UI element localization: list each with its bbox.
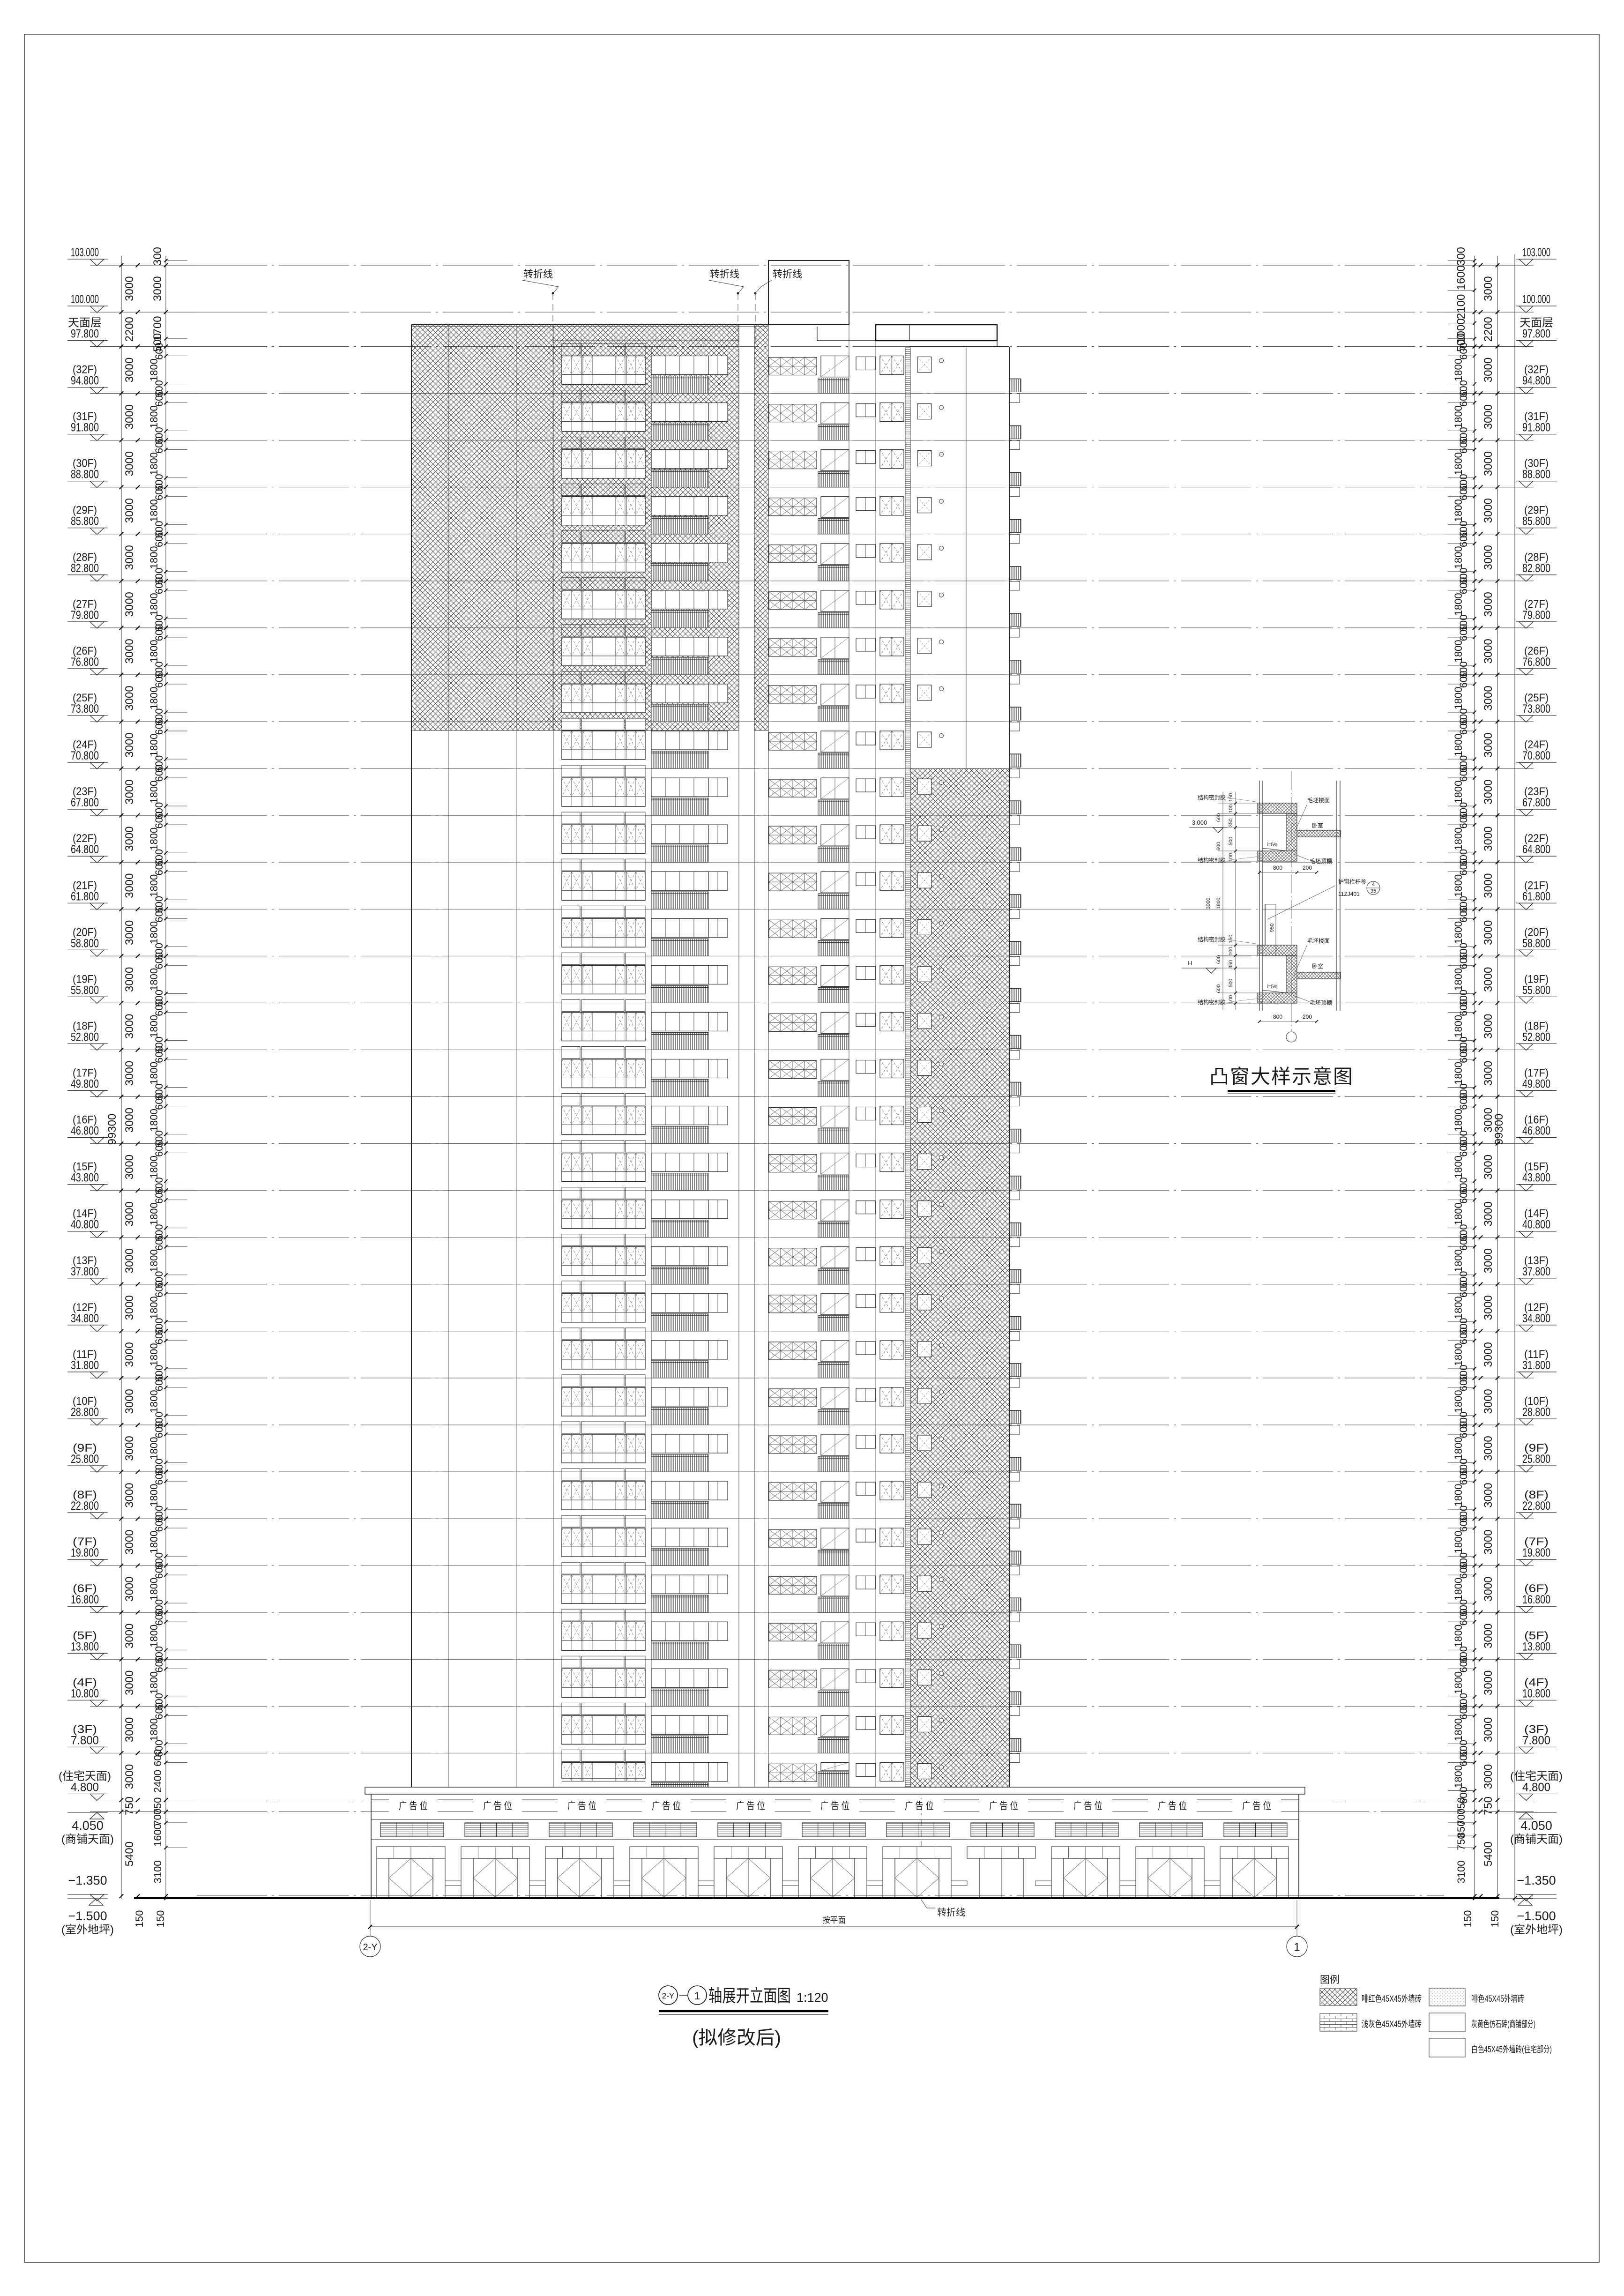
svg-text:3000: 3000 [123,1483,136,1507]
svg-text:广 告 位: 广 告 位 [736,1801,765,1811]
svg-text:1800: 1800 [148,921,160,944]
svg-text:3000: 3000 [123,1014,136,1039]
svg-text:广 告 位: 广 告 位 [399,1801,428,1811]
svg-text:1800: 1800 [1453,1671,1464,1694]
svg-text:3000: 3000 [1482,873,1495,898]
svg-text:1800: 1800 [148,640,160,663]
svg-text:(室外地坪): (室外地坪) [61,1923,114,1936]
svg-text:广 告 位: 广 告 位 [820,1801,849,1811]
svg-text:按平面: 按平面 [822,1916,846,1925]
svg-text:64.800: 64.800 [1522,843,1550,856]
svg-text:1800: 1800 [148,781,160,804]
svg-text:1800: 1800 [1453,1578,1464,1601]
svg-text:13.800: 13.800 [71,1640,99,1653]
svg-text:150: 150 [1228,793,1234,802]
svg-text:16.800: 16.800 [71,1593,99,1606]
svg-text:82.800: 82.800 [71,562,99,575]
svg-text:600: 600 [153,380,165,397]
svg-text:1800: 1800 [148,1671,160,1694]
svg-text:750: 750 [1455,1833,1467,1850]
svg-text:啡色45X45外墙砖: 啡色45X45外墙砖 [1471,1994,1524,2004]
svg-text:300: 300 [1455,247,1468,266]
svg-text:3000: 3000 [123,1529,136,1554]
svg-text:广 告 位: 广 告 位 [1242,1801,1271,1811]
svg-text:34.800: 34.800 [1522,1312,1550,1325]
svg-text:(商铺天面): (商铺天面) [61,1833,114,1846]
svg-text:150: 150 [155,1910,166,1928]
svg-text:毛坯顶棚: 毛坯顶棚 [1310,999,1332,1006]
svg-text:浅灰色45X45外墙砖: 浅灰色45X45外墙砖 [1362,2019,1422,2029]
svg-text:1800: 1800 [148,593,160,616]
svg-text:600: 600 [1458,896,1469,913]
svg-text:600: 600 [153,1693,165,1710]
svg-text:3000: 3000 [1482,779,1495,804]
svg-text:3100: 3100 [1455,1860,1467,1883]
svg-text:70.800: 70.800 [1522,749,1550,762]
svg-text:3000: 3000 [123,1436,136,1461]
svg-text:1800: 1800 [148,1249,160,1272]
svg-text:600: 600 [1458,990,1469,1007]
svg-text:1800: 1800 [148,734,160,757]
svg-text:1: 1 [1294,1941,1300,1953]
svg-text:150: 150 [1489,1910,1501,1928]
svg-text:7.800: 7.800 [1522,1734,1550,1747]
svg-text:31.800: 31.800 [71,1359,99,1372]
svg-text:600: 600 [1458,849,1469,866]
svg-text:600: 600 [1458,1412,1469,1429]
svg-text:40.800: 40.800 [1522,1218,1550,1231]
svg-text:300: 300 [151,247,164,266]
svg-text:1800: 1800 [1453,921,1464,944]
svg-text:1800: 1800 [1453,1437,1464,1460]
svg-text:2-Y: 2-Y [363,1942,377,1953]
svg-text:600: 600 [153,943,165,960]
svg-text:600: 600 [1458,474,1469,491]
svg-text:4.050: 4.050 [72,1819,104,1833]
svg-text:600: 600 [153,990,165,1007]
svg-text:1:120: 1:120 [797,1990,828,2005]
svg-text:转折线: 转折线 [937,1907,965,1918]
svg-text:600: 600 [153,1177,165,1194]
svg-text:3000: 3000 [1482,1483,1495,1507]
svg-text:600: 600 [153,662,165,679]
svg-text:1800: 1800 [1453,1484,1464,1507]
svg-text:3000: 3000 [123,498,136,523]
svg-text:结构密封胶: 结构密封胶 [1198,936,1226,943]
svg-text:3000: 3000 [151,276,164,301]
svg-text:79.800: 79.800 [71,609,99,622]
svg-text:600: 600 [1458,427,1469,444]
svg-text:1: 1 [694,1990,700,2002]
svg-text:76.800: 76.800 [71,656,99,669]
svg-text:600: 600 [153,849,165,866]
svg-text:3000: 3000 [123,1201,136,1226]
svg-text:3.000: 3.000 [1192,819,1207,826]
svg-text:600: 600 [1458,1083,1469,1101]
svg-text:−1.350: −1.350 [68,1873,107,1887]
svg-text:1800: 1800 [148,546,160,569]
svg-text:58.800: 58.800 [1522,937,1550,950]
svg-text:500: 500 [1228,979,1234,987]
svg-text:(商铺天面): (商铺天面) [1510,1833,1563,1846]
svg-text:11ZJ401: 11ZJ401 [1338,891,1360,897]
svg-text:1800: 1800 [1453,781,1464,804]
svg-text:800: 800 [1273,865,1282,871]
svg-text:啡红色45X45外墙砖: 啡红色45X45外墙砖 [1362,1994,1422,2004]
svg-text:3100: 3100 [152,1860,164,1883]
svg-text:600: 600 [1458,521,1469,538]
svg-text:600: 600 [1216,955,1222,964]
svg-text:600: 600 [1458,1318,1469,1335]
svg-text:600: 600 [1458,1693,1469,1710]
svg-text:3000: 3000 [1482,545,1495,570]
svg-text:5400: 5400 [1482,1841,1495,1866]
svg-text:97.800: 97.800 [71,328,99,341]
svg-text:1800: 1800 [148,1390,160,1413]
svg-text:3000: 3000 [123,1295,136,1320]
svg-text:350: 350 [1228,960,1234,969]
svg-text:10.800: 10.800 [71,1687,99,1700]
svg-text:广 告 位: 广 告 位 [567,1801,596,1811]
svg-text:19.800: 19.800 [1522,1546,1550,1559]
svg-text:3000: 3000 [123,592,136,617]
svg-text:1800: 1800 [1453,1155,1464,1178]
svg-text:2-Y: 2-Y [662,1991,674,2000]
svg-text:43.800: 43.800 [1522,1171,1550,1185]
svg-text:1800: 1800 [1453,405,1464,428]
svg-text:600: 600 [153,521,165,538]
svg-text:67.800: 67.800 [1522,796,1550,809]
svg-text:35: 35 [1371,888,1376,894]
svg-text:1800: 1800 [148,1015,160,1038]
svg-text:43.800: 43.800 [71,1171,99,1185]
svg-text:150: 150 [1462,1910,1474,1928]
svg-text:3000: 3000 [1482,1248,1495,1273]
svg-text:58.800: 58.800 [71,937,99,950]
svg-text:1800: 1800 [148,1437,160,1460]
svg-text:49.800: 49.800 [71,1078,99,1091]
svg-text:1800: 1800 [148,874,160,897]
svg-text:1800: 1800 [1453,1062,1464,1085]
svg-text:i=5%: i=5% [1267,842,1279,848]
svg-text:3000: 3000 [123,404,136,429]
svg-text:3000: 3000 [123,276,136,301]
svg-text:103.000: 103.000 [71,246,99,259]
svg-text:3000: 3000 [123,967,136,992]
svg-text:3000: 3000 [123,1717,136,1742]
svg-text:毛坯楼面: 毛坯楼面 [1307,797,1330,804]
svg-text:600: 600 [1458,1599,1469,1617]
svg-text:88.800: 88.800 [1522,468,1550,481]
svg-text:毛坯楼面: 毛坯楼面 [1307,937,1330,944]
svg-text:600: 600 [1458,1036,1469,1054]
svg-text:1800: 1800 [1453,640,1464,663]
svg-text:600: 600 [153,708,165,726]
svg-text:1800: 1800 [1453,499,1464,522]
svg-text:1800: 1800 [1453,452,1464,475]
svg-text:广 告 位: 广 告 位 [652,1801,681,1811]
svg-text:转折线: 转折线 [523,269,553,280]
svg-text:1800: 1800 [148,1578,160,1601]
svg-text:28.800: 28.800 [1522,1406,1550,1419]
svg-text:600: 600 [152,1749,164,1767]
svg-text:1800: 1800 [1453,1343,1464,1366]
svg-text:1800: 1800 [1453,1296,1464,1319]
svg-text:广 告 位: 广 告 位 [989,1801,1018,1811]
svg-text:600: 600 [153,1506,165,1523]
svg-text:600: 600 [1216,842,1222,850]
svg-text:25.800: 25.800 [71,1453,99,1466]
svg-text:600: 600 [1458,1177,1469,1194]
svg-text:150: 150 [134,1910,145,1928]
svg-text:600: 600 [153,615,165,632]
svg-text:3000: 3000 [1482,1155,1495,1179]
svg-text:600: 600 [153,1271,165,1288]
svg-text:1800: 1800 [1453,593,1464,616]
svg-text:85.800: 85.800 [1522,515,1550,528]
svg-text:600: 600 [1458,1271,1469,1288]
svg-text:结构密封胶: 结构密封胶 [1198,857,1226,864]
svg-text:1800: 1800 [148,452,160,475]
svg-text:4.050: 4.050 [1520,1819,1552,1833]
svg-text:2200: 2200 [123,317,136,342]
svg-text:1800: 1800 [148,1625,160,1647]
svg-text:3000: 3000 [1482,1014,1495,1039]
svg-text:600: 600 [153,802,165,820]
svg-text:88.800: 88.800 [71,468,99,481]
svg-text:3000: 3000 [1482,1529,1495,1554]
svg-text:−1.500: −1.500 [1517,1909,1556,1923]
svg-text:1800: 1800 [148,358,160,381]
svg-text:图例: 图例 [1320,1975,1340,1985]
svg-text:99300: 99300 [1493,1114,1505,1145]
svg-text:600: 600 [1458,343,1469,360]
svg-text:3000: 3000 [123,1764,136,1789]
svg-text:毛坯顶棚: 毛坯顶棚 [1310,857,1332,865]
svg-text:1800: 1800 [1453,1015,1464,1038]
svg-text:99300: 99300 [106,1114,119,1145]
svg-text:3000: 3000 [123,920,136,945]
svg-text:1800: 1800 [1453,734,1464,757]
svg-text:1600: 1600 [152,1824,164,1847]
svg-text:600: 600 [153,1365,165,1382]
svg-text:3000: 3000 [123,1624,136,1648]
svg-text:46.800: 46.800 [71,1125,99,1138]
svg-text:600: 600 [153,1130,165,1148]
svg-text:37.800: 37.800 [1522,1265,1550,1278]
svg-text:1800: 1800 [1453,1109,1464,1132]
svg-text:1800: 1800 [148,1531,160,1554]
svg-text:600: 600 [1458,708,1469,726]
svg-text:3000: 3000 [1482,1342,1495,1367]
svg-text:3000: 3000 [1482,1670,1495,1695]
svg-text:55.800: 55.800 [1522,984,1550,997]
svg-text:3000: 3000 [123,1389,136,1414]
svg-text:(拟修改后): (拟修改后) [692,2028,781,2048]
svg-text:1800: 1800 [148,1202,160,1225]
svg-text:64.800: 64.800 [71,843,99,856]
svg-text:91.800: 91.800 [71,421,99,434]
svg-text:600: 600 [1458,662,1469,679]
svg-text:3000: 3000 [1482,967,1495,992]
svg-text:3000: 3000 [1482,404,1495,429]
svg-text:13.800: 13.800 [1522,1640,1550,1653]
svg-text:3000: 3000 [123,1061,136,1086]
svg-text:3000: 3000 [123,732,136,757]
svg-text:94.800: 94.800 [71,374,99,388]
svg-text:85.800: 85.800 [71,515,99,528]
svg-text:200: 200 [1303,1014,1312,1020]
svg-text:转折线: 转折线 [773,269,802,280]
svg-text:600: 600 [153,1318,165,1335]
svg-text:600: 600 [1458,567,1469,585]
svg-text:3000: 3000 [1482,498,1495,523]
svg-text:3000: 3000 [1482,1389,1495,1414]
svg-text:1800: 1800 [148,1155,160,1178]
svg-text:1800: 1800 [148,1484,160,1507]
svg-text:1800: 1800 [148,1343,160,1366]
svg-text:94.800: 94.800 [1522,374,1550,388]
svg-text:600: 600 [1458,380,1469,397]
svg-text:500: 500 [1228,837,1234,845]
svg-text:350: 350 [1228,819,1234,827]
svg-text:600: 600 [153,1412,165,1429]
svg-text:52.800: 52.800 [71,1031,99,1044]
svg-text:600: 600 [153,755,165,773]
svg-text:1800: 1800 [148,1062,160,1085]
svg-text:600: 600 [153,1459,165,1476]
svg-text:100.000: 100.000 [1522,293,1550,306]
svg-text:1800: 1800 [1453,358,1464,381]
svg-text:79.800: 79.800 [1522,609,1550,622]
svg-text:1800: 1800 [148,1718,160,1741]
svg-text:73.800: 73.800 [71,702,99,716]
svg-text:91.800: 91.800 [1522,421,1550,434]
svg-text:轴展开立面图: 轴展开立面图 [708,1986,791,2005]
svg-text:1800: 1800 [1453,1625,1464,1647]
svg-text:19.800: 19.800 [71,1546,99,1559]
svg-text:3000: 3000 [1482,1577,1495,1602]
svg-text:1800: 1800 [148,1109,160,1132]
svg-text:600: 600 [1458,1130,1469,1148]
svg-text:1800: 1800 [148,827,160,850]
svg-text:600: 600 [153,1036,165,1054]
svg-text:3000: 3000 [123,1577,136,1602]
svg-text:67.800: 67.800 [71,796,99,809]
svg-text:34.800: 34.800 [71,1312,99,1325]
svg-text:600: 600 [153,1224,165,1241]
svg-text:100.000: 100.000 [71,293,99,306]
svg-text:3000: 3000 [123,1108,136,1133]
svg-text:28.800: 28.800 [71,1406,99,1419]
svg-text:凸窗大样示意图: 凸窗大样示意图 [1209,1066,1354,1088]
svg-text:1800: 1800 [1453,1765,1464,1788]
svg-text:100: 100 [1228,853,1234,862]
svg-text:1800: 1800 [1453,1390,1464,1413]
svg-text:100: 100 [1228,805,1234,813]
svg-text:600: 600 [153,1083,165,1101]
svg-text:750: 750 [123,1797,136,1815]
svg-text:70.800: 70.800 [71,749,99,762]
svg-text:61.800: 61.800 [71,890,99,903]
svg-text:200: 200 [1303,865,1312,871]
svg-text:1800: 1800 [148,499,160,522]
svg-text:白色45X45外墙砖(住宅部分): 白色45X45外墙砖(住宅部分) [1471,2044,1552,2055]
svg-text:3000: 3000 [123,1155,136,1179]
svg-text:卧室: 卧室 [1312,962,1323,969]
svg-text:2200: 2200 [1482,317,1495,342]
svg-text:3000: 3000 [123,1248,136,1273]
svg-text:800: 800 [1273,1014,1282,1020]
svg-text:3000: 3000 [1482,451,1495,476]
svg-text:3000: 3000 [1482,1764,1495,1789]
svg-text:22.800: 22.800 [1522,1499,1550,1513]
svg-text:3000: 3000 [1482,732,1495,757]
svg-text:600: 600 [1458,755,1469,773]
svg-text:4: 4 [1372,882,1375,887]
svg-text:76.800: 76.800 [1522,656,1550,669]
svg-text:600: 600 [1458,1224,1469,1241]
svg-text:600: 600 [1458,1459,1469,1476]
svg-text:1800: 1800 [1453,827,1464,850]
svg-text:1800: 1800 [1453,687,1464,710]
svg-text:1800: 1800 [1453,1249,1464,1272]
svg-text:3000: 3000 [123,451,136,476]
svg-text:600: 600 [1458,1506,1469,1523]
svg-text:3000: 3000 [1482,639,1495,663]
svg-text:103.000: 103.000 [1522,246,1550,259]
svg-text:广 告 位: 广 告 位 [1073,1801,1103,1811]
svg-text:600: 600 [153,1646,165,1663]
svg-text:55.800: 55.800 [71,984,99,997]
svg-text:1800: 1800 [148,405,160,428]
svg-text:600: 600 [1458,1749,1469,1767]
svg-text:150: 150 [1228,935,1234,943]
svg-text:750: 750 [1482,1797,1495,1815]
svg-text:100: 100 [1228,947,1234,955]
svg-text:转折线: 转折线 [710,269,739,280]
svg-text:广 告 位: 广 告 位 [1158,1801,1187,1811]
svg-text:3000: 3000 [1482,1717,1495,1742]
svg-text:3000: 3000 [1482,686,1495,710]
svg-text:1600: 1600 [1455,265,1468,290]
svg-text:4.800: 4.800 [1522,1781,1550,1794]
svg-text:600: 600 [153,1552,165,1570]
svg-text:广 告 位: 广 告 位 [483,1801,512,1811]
svg-text:600: 600 [1458,1646,1469,1663]
svg-text:600: 600 [1216,813,1222,822]
svg-text:100: 100 [1228,995,1234,1004]
svg-text:600: 600 [1458,1365,1469,1382]
svg-text:600: 600 [1458,802,1469,820]
svg-text:10.800: 10.800 [1522,1687,1550,1700]
svg-text:结构密封胶: 结构密封胶 [1198,794,1226,801]
svg-text:950: 950 [1269,924,1275,932]
svg-text:1800: 1800 [1453,968,1464,991]
svg-text:3000: 3000 [123,1670,136,1695]
svg-text:600: 600 [153,567,165,585]
svg-text:49.800: 49.800 [1522,1078,1550,1091]
svg-text:灰黄色仿石砖(商铺部分): 灰黄色仿石砖(商铺部分) [1471,2019,1535,2029]
svg-text:4.800: 4.800 [71,1781,99,1794]
svg-text:61.800: 61.800 [1522,890,1550,903]
svg-text:22.800: 22.800 [71,1499,99,1513]
svg-text:1800: 1800 [148,1296,160,1319]
svg-text:3000: 3000 [123,827,136,851]
svg-text:82.800: 82.800 [1522,562,1550,575]
svg-text:1800: 1800 [1453,546,1464,569]
svg-text:7.800: 7.800 [71,1734,99,1747]
